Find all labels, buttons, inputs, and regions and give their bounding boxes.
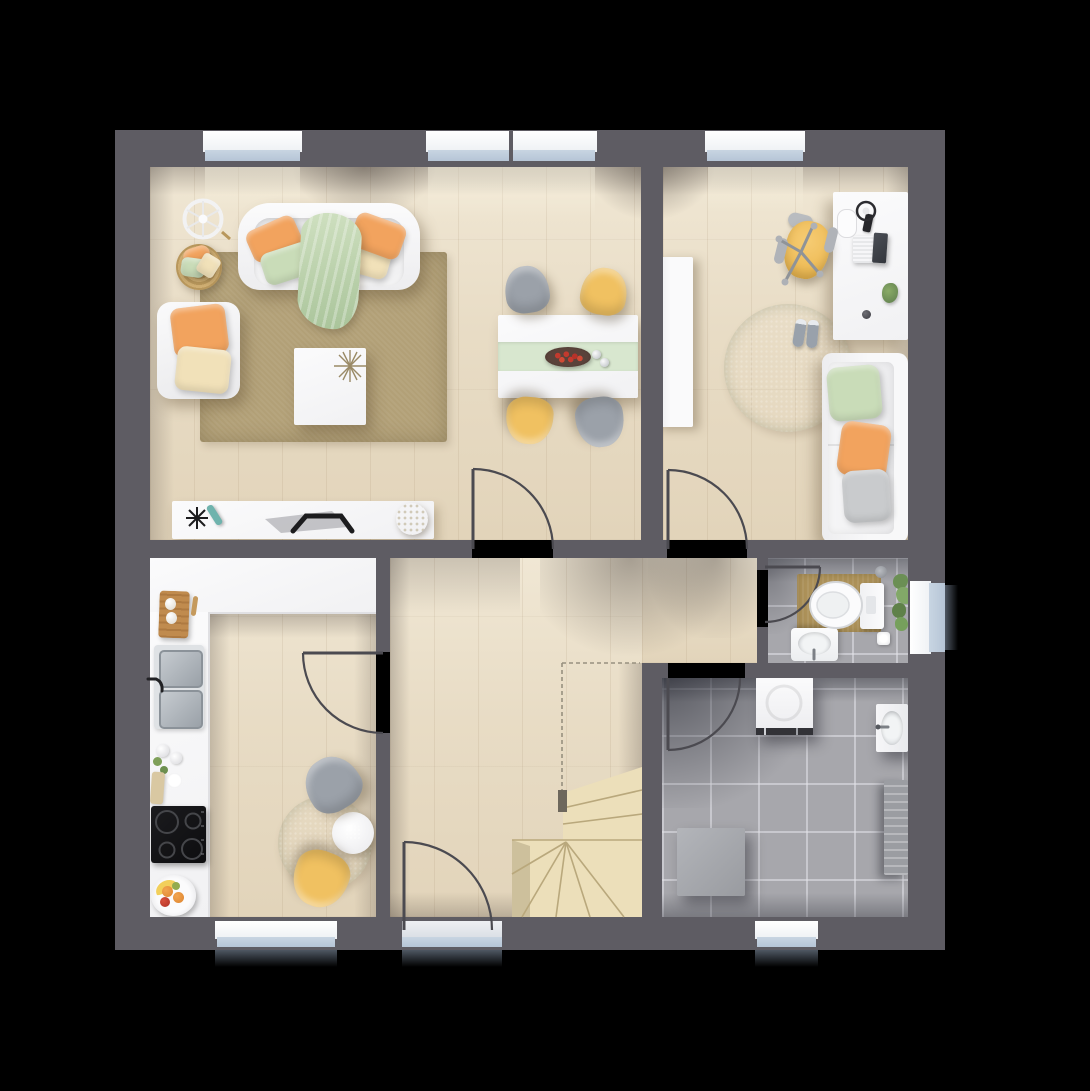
orange-1 [162,886,173,897]
wooden-tray [150,772,165,805]
laptop-screen [872,233,888,264]
window-office-glass [707,150,803,161]
window-living-sill [203,131,302,152]
shoes-pair [793,318,823,350]
wall-right [908,130,945,950]
pepper-shaker [600,358,609,367]
washing-machine [756,677,813,735]
toilet-cistern [860,583,884,629]
radiator [884,780,908,875]
orange-2 [173,892,184,903]
wall-dining-office [641,167,663,558]
shoe-right [806,320,819,349]
window-kitchen-exterior [215,950,337,967]
window-living-glass [205,150,300,161]
entrance-door-glass [402,937,502,947]
throw-blanket [296,211,363,330]
egg-1 [165,598,176,610]
flower-ball-decor [396,503,428,535]
toilet-paper [877,632,890,645]
desk-knob [862,310,871,319]
coffee-table [294,348,366,425]
window-utility-glass [757,937,816,947]
floor-corridor [642,558,757,663]
dish-cup-1 [156,744,169,757]
utility-sink-bowl [881,711,903,745]
salt-shaker [592,350,601,359]
window-office-sill [705,131,805,152]
daybed-pillow-mint [826,364,884,422]
herb-jar-1 [153,757,162,766]
window-utility-exterior [755,950,818,967]
washing-machine-panel [756,728,813,735]
window-bathroom-sill [910,581,931,654]
shower-head [875,566,887,578]
window-dining-mullion [509,131,513,161]
window-bathroom-glass [929,583,945,652]
dish-cup-2 [170,752,182,764]
egg-2 [166,612,177,624]
wall-bath-top [747,540,908,558]
notepad [837,209,857,238]
appliance-box [677,828,745,896]
wall-bath-left-upper [757,558,768,570]
wall-living-kitchen [150,540,472,558]
entrance-door-exterior [402,950,502,967]
cooktop [151,806,206,863]
washbasin-bowl [798,632,831,655]
shoe-left [792,318,807,347]
lime [172,882,180,890]
window-kitchen-glass [217,937,335,947]
wall-hall-utility [642,663,662,917]
dish-plate [167,773,182,788]
wall-bath-left-lower [757,627,768,665]
plant-leaf-4 [895,617,908,631]
floor-hallway [390,558,642,917]
wall-utility-top [745,663,908,678]
wall-kitchen-lower [376,733,390,917]
apple-red [160,897,170,907]
table-plant [345,824,362,841]
armchair-pillow-cream [174,345,232,394]
sink-basin-top [159,650,203,688]
daybed-pillow-gray [841,468,892,523]
sink-basin-bottom [159,690,203,729]
fruit-apples [551,350,585,364]
floor-plan-canvas [0,0,1090,1091]
wall-left [115,130,150,950]
window-bathroom-exterior [945,585,958,650]
wall-kitchen-upper [376,558,390,652]
laptop-keyboard [853,236,874,263]
wall-utility-top-left [662,663,668,678]
plant-leaf-3 [892,603,906,618]
